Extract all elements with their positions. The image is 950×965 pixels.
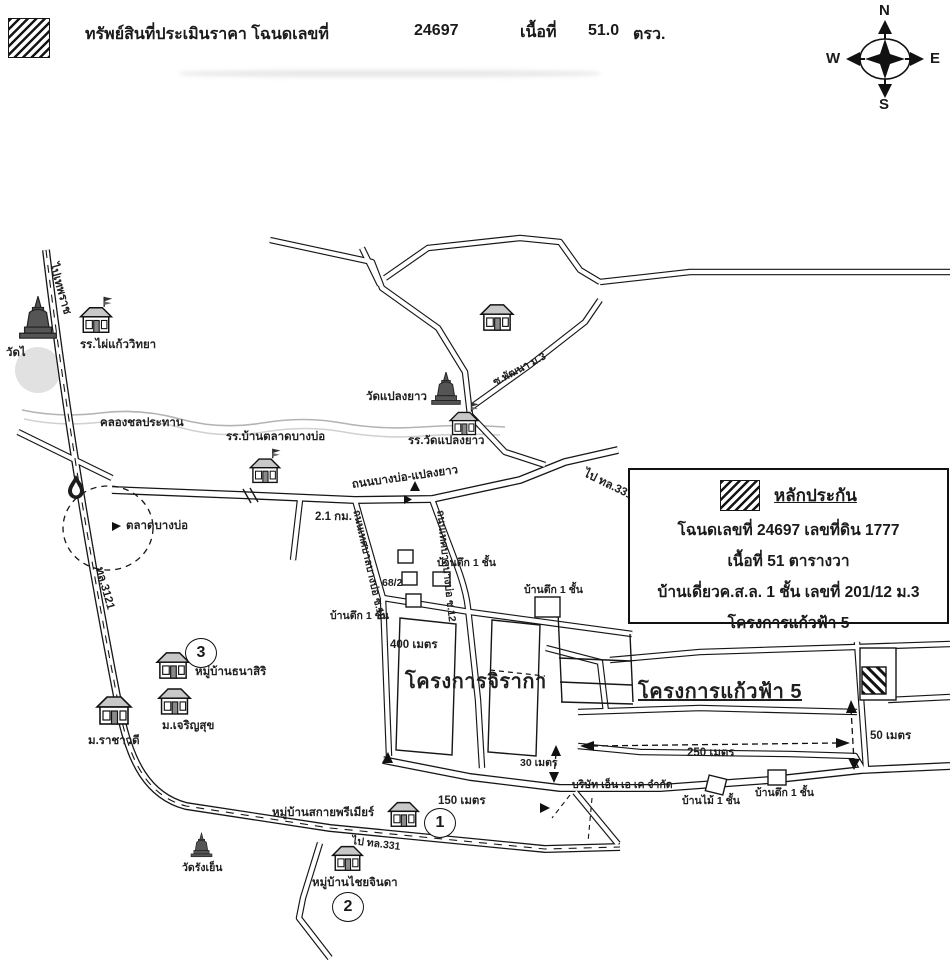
label-150m: 150 เมตร bbox=[438, 796, 486, 808]
label-market: ตลาดบางบ่อ bbox=[126, 521, 188, 533]
house-icon bbox=[481, 305, 513, 330]
house-icon bbox=[159, 689, 190, 714]
house-icon bbox=[389, 803, 419, 827]
label-project-jiraka: โครงการจิรากา bbox=[405, 672, 547, 692]
label-wood-house: บ้านไม้ 1 ชั้น bbox=[682, 796, 740, 807]
label-thanasiri: หมู่บ้านธนาสิริ bbox=[195, 667, 266, 679]
label-50m: 50 เมตร bbox=[870, 731, 911, 743]
legend-house-line: บ้านเดี่ยวค.ส.ล. 1 ชั้น เลขที่ 201/12 ม.… bbox=[630, 579, 947, 604]
collateral-legend-box: หลักประกัน โฉนดเลขที่ 24697 เลขที่ดิน 17… bbox=[628, 468, 949, 624]
label-chaijinda: หมู่บ้านไชยจินดา bbox=[312, 878, 398, 890]
legend-hatch-swatch bbox=[720, 480, 760, 511]
label-bldg1: บ้านตึก 1 ชั้น bbox=[437, 558, 496, 569]
label-bldg1: บ้านตึก 1 ชั้น bbox=[524, 585, 583, 596]
legend-deed-line: โฉนดเลขที่ 24697 เลขที่ดิน 1777 bbox=[630, 517, 947, 542]
label-wat-left: วัดไ bbox=[6, 348, 26, 360]
label-distance-2-1km: 2.1 กม. bbox=[315, 512, 352, 524]
label-400m: 400 เมตร bbox=[390, 640, 438, 652]
legend-area-line: เนื้อที่ 51 ตารางวา bbox=[630, 548, 947, 573]
label-house-no-682: 68/2 bbox=[382, 578, 402, 589]
label-project-kaewfa5: โครงการแก้วฟ้า 5 bbox=[638, 682, 802, 702]
temple-icon bbox=[191, 833, 212, 857]
label-sky-premier: หมู่บ้านสกายพรีเมียร์ bbox=[272, 808, 374, 820]
school-flag-icon bbox=[250, 449, 280, 483]
label-school-watplaengyao: รร.วัดแปลงยาว bbox=[408, 436, 485, 448]
survey-map-page: { "header": { "title": "ทรัพย์สินที่ประเ… bbox=[0, 0, 950, 965]
house-icon bbox=[333, 847, 363, 871]
label-company: บริษัท เอ็น เอ เค จำกัด bbox=[572, 780, 673, 791]
subject-property-hatched-marker bbox=[862, 667, 886, 694]
label-charoensuk: ม.เจริญสุข bbox=[162, 721, 214, 733]
measure-lines bbox=[554, 708, 854, 777]
legend-title: หลักประกัน bbox=[774, 482, 857, 509]
temple-icon bbox=[432, 372, 461, 404]
house-icon bbox=[97, 697, 131, 724]
circled-marker-2: 2 bbox=[332, 892, 364, 922]
circled-marker-3: 3 bbox=[185, 638, 217, 668]
house-icon bbox=[157, 653, 189, 678]
circled-marker-1: 1 bbox=[424, 808, 456, 838]
label-school-bantalad: รร.บ้านตลาดบางบ่อ bbox=[226, 432, 325, 444]
legend-project-line: โครงการแก้วฟ้า 5 bbox=[630, 610, 947, 635]
market-pointer-icon bbox=[112, 522, 121, 531]
label-rachawadee: ม.ราชาวดี bbox=[88, 736, 140, 748]
school-flag-icon bbox=[81, 297, 113, 332]
label-250m: 250 เมตร bbox=[687, 748, 735, 760]
label-canal: คลองชลประทาน bbox=[100, 418, 184, 430]
label-school-phaikaew: รร.ไผ่แก้ววิทยา bbox=[80, 340, 156, 352]
label-30m: 30 เมตร bbox=[520, 758, 558, 769]
label-bldg1: บ้านตึก 1 ชั้น bbox=[330, 611, 389, 622]
label-wat-rangyen: วัดรังเย็น bbox=[182, 863, 222, 874]
label-wat-plaengyao: วัดแปลงยาว bbox=[366, 392, 427, 404]
label-bldg1: บ้านตึก 1 ชั้น bbox=[755, 788, 814, 799]
